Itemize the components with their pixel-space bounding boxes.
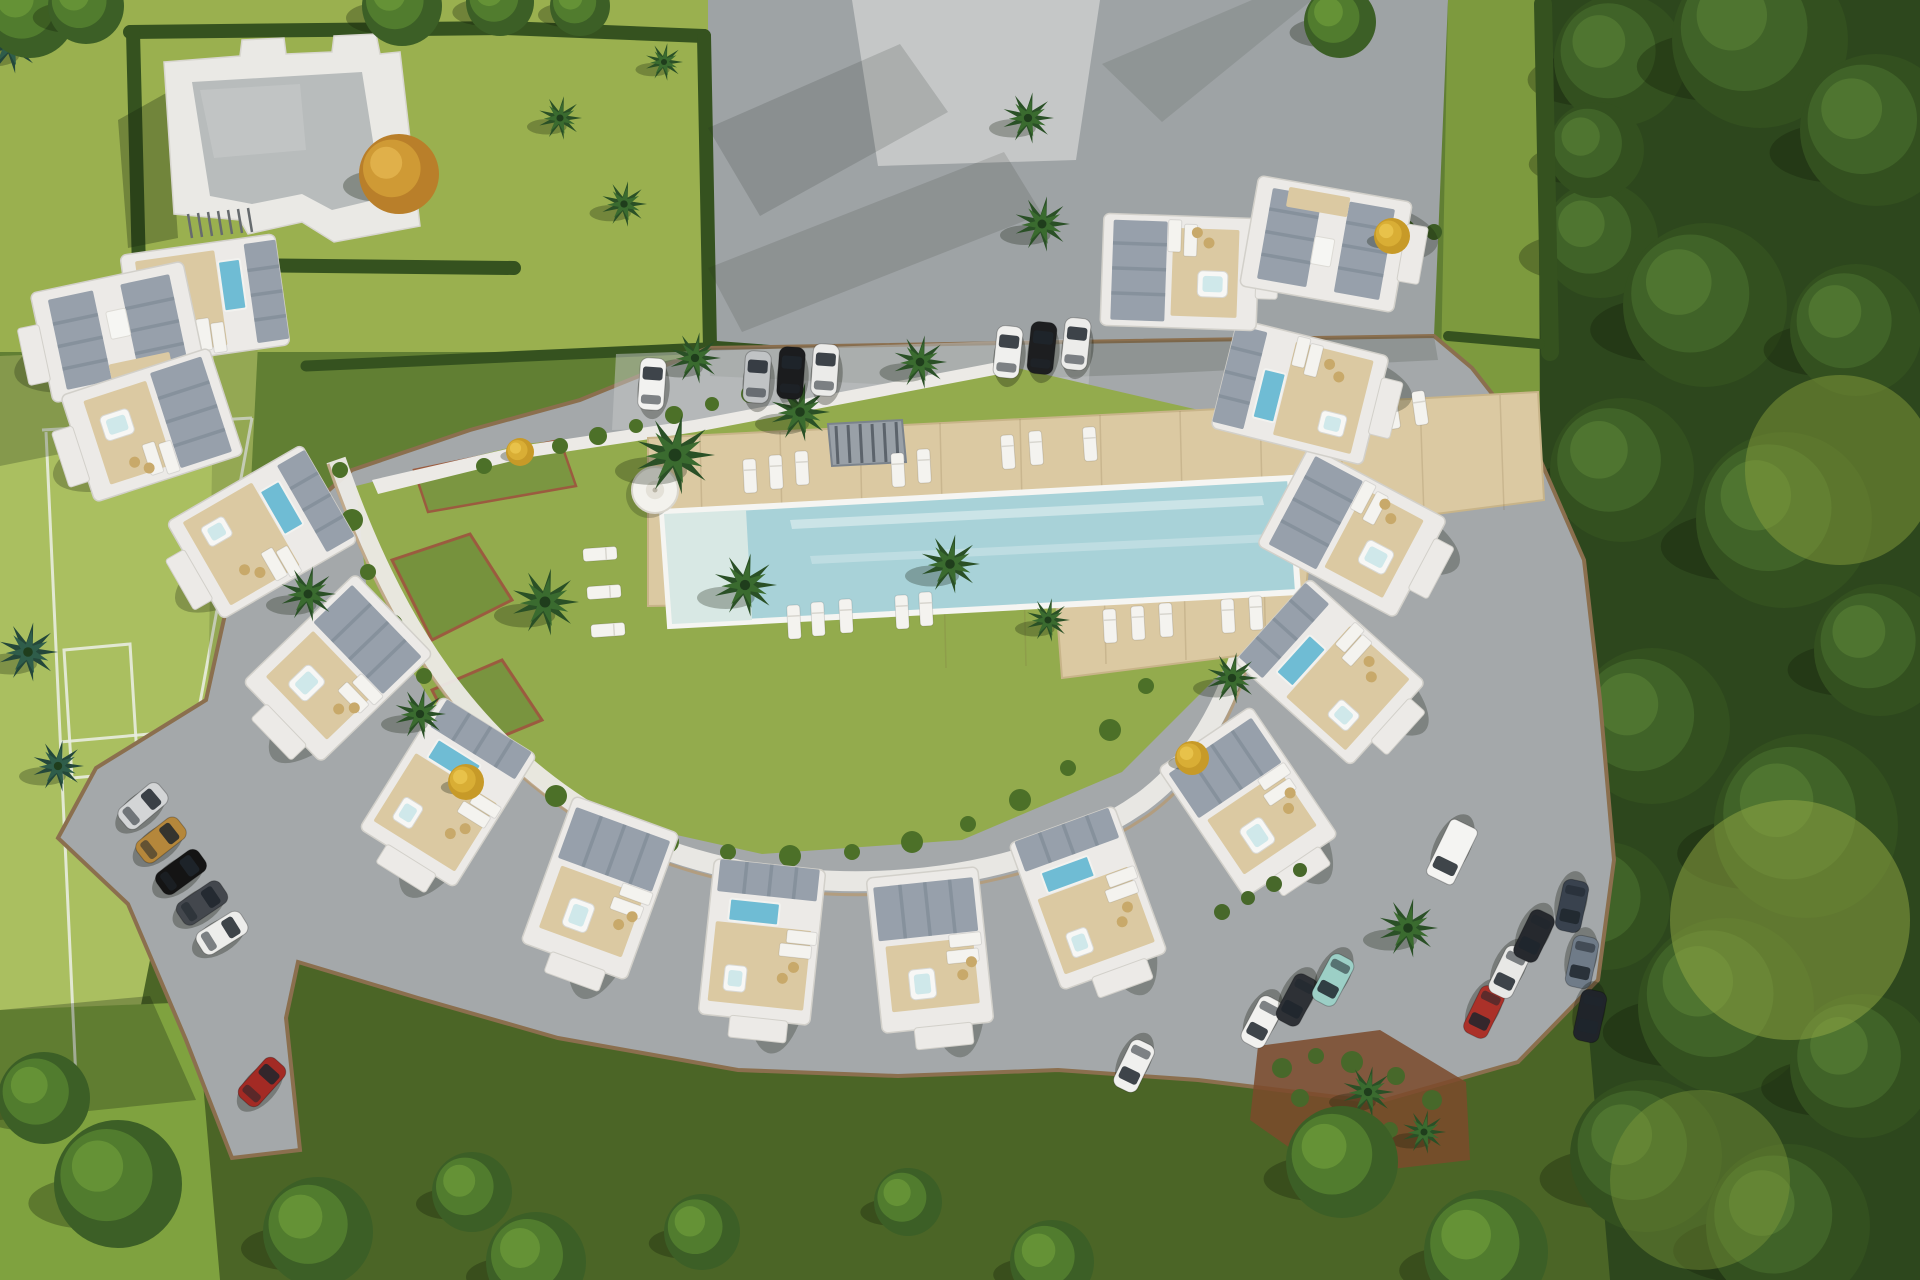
sun-lounger — [891, 453, 906, 488]
sun-lounger — [895, 595, 910, 630]
sun-lounger — [1082, 427, 1097, 462]
sun-lounger — [795, 451, 810, 486]
sun-lounger — [591, 622, 626, 637]
sun-lounger — [917, 449, 932, 484]
aerial-render-canvas — [0, 0, 1920, 1280]
sun-lounger — [1159, 603, 1174, 638]
sun-lounger — [769, 455, 784, 490]
sun-lounger — [743, 459, 758, 494]
sun-lounger — [583, 546, 618, 561]
aerial-site-render — [0, 0, 1920, 1280]
sun-lounger — [787, 605, 802, 640]
sun-lounger — [587, 584, 622, 599]
sun-lounger — [1249, 596, 1264, 631]
sun-lounger — [1000, 435, 1015, 470]
sun-lounger — [811, 602, 826, 637]
sun-lounger — [919, 592, 934, 627]
sun-lounger — [1103, 609, 1118, 644]
sun-lounger — [1221, 599, 1236, 634]
sun-lounger — [1131, 606, 1146, 641]
sun-lounger — [839, 599, 854, 634]
sun-lounger — [1028, 431, 1043, 466]
